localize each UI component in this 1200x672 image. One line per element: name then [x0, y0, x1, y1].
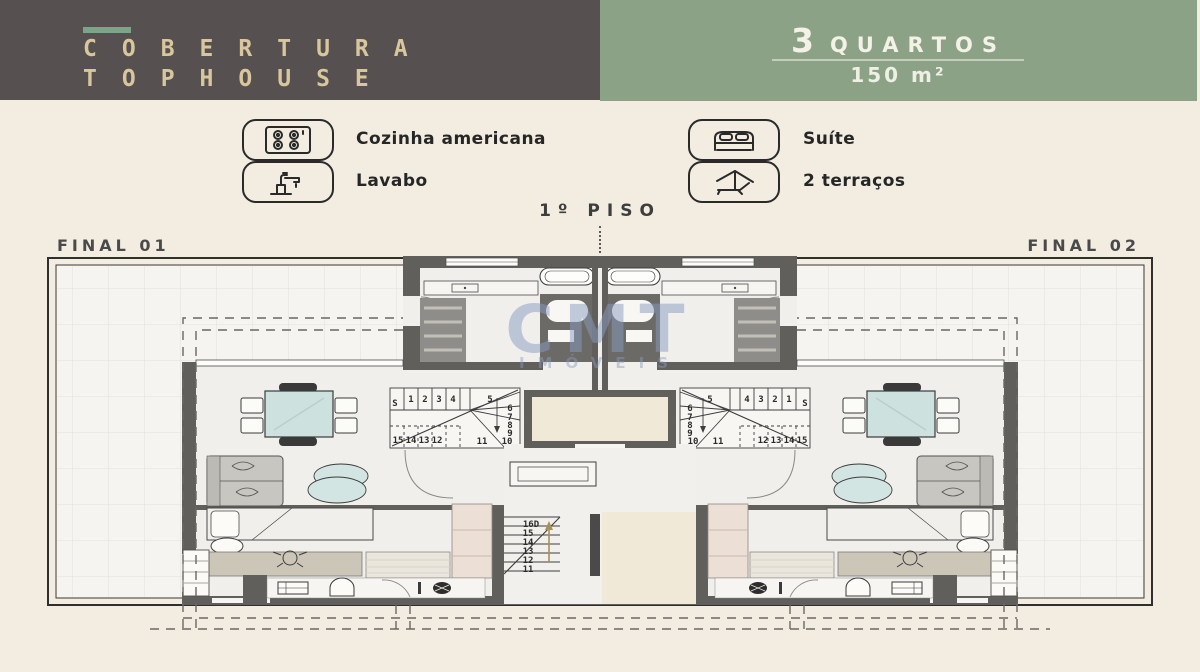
- watermark-subtitle: IMÓVEIS: [519, 353, 681, 372]
- stair-step-number: 10: [502, 437, 513, 447]
- stair-step-number: 11: [523, 565, 534, 575]
- floorplan-marketing-page: COBERTURA TOPHOUSE 3 QUARTOS 150 m² Cozi…: [0, 0, 1200, 672]
- stair-step-number: 12: [758, 436, 769, 446]
- stair-step-number: 10: [688, 437, 699, 447]
- stair-step-number: 3: [758, 395, 763, 405]
- dresser: [366, 552, 450, 578]
- floor-plan: S 1 2 3 4 5 6 7 8 9 10 15 14 13 12 11 S …: [0, 0, 1200, 672]
- stair-step-number: 15: [393, 436, 404, 446]
- pouf: [308, 464, 368, 503]
- landing: [602, 512, 696, 604]
- sofa: [207, 456, 283, 506]
- stair-step-number: 1: [786, 395, 791, 405]
- watermark: CMT IMÓVEIS: [505, 291, 694, 372]
- stair-up-label: S: [392, 399, 397, 409]
- closet: [452, 504, 492, 578]
- stair-step-number: 5: [487, 395, 492, 405]
- stair-step-number: 15: [797, 436, 808, 446]
- suite-wardrobe: [420, 298, 466, 362]
- stair-rail: [590, 514, 600, 576]
- stair-step-number: 4: [744, 395, 750, 405]
- stair-step-number: 5: [707, 395, 712, 405]
- stair-step-number: 14: [406, 436, 417, 446]
- stair-step-number: 14: [784, 436, 795, 446]
- sideboard: [510, 462, 596, 486]
- bed: [207, 508, 373, 540]
- stair-up-label: S: [802, 399, 807, 409]
- stair-step-number: 11: [713, 437, 724, 447]
- side-table: [211, 538, 243, 554]
- stair-step-number: 13: [771, 436, 782, 446]
- stair-step-number: 11: [477, 437, 488, 447]
- stair-step-number: 12: [432, 436, 443, 446]
- stair-step-number: 13: [419, 436, 430, 446]
- stair-step-number: 1: [408, 395, 413, 405]
- stair-step-number: 4: [450, 395, 456, 405]
- elevator: [524, 390, 676, 448]
- kitchen-counter: [196, 551, 362, 576]
- stair-step-number: 2: [422, 395, 427, 405]
- stair-step-number: 3: [436, 395, 441, 405]
- stair-step-number: 2: [772, 395, 777, 405]
- suite-bathtub: [540, 268, 594, 285]
